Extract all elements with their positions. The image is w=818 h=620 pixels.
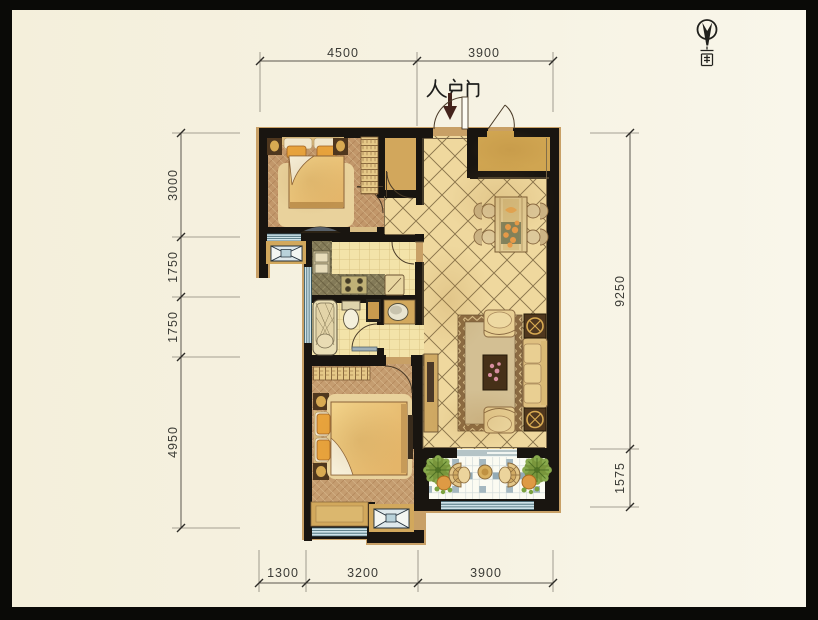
svg-text:3200: 3200 (347, 566, 379, 580)
svg-text:1300: 1300 (267, 566, 299, 580)
svg-text:9250: 9250 (613, 275, 627, 307)
svg-text:3900: 3900 (468, 46, 500, 60)
svg-text:3000: 3000 (166, 169, 180, 201)
svg-text:1575: 1575 (613, 462, 627, 494)
svg-text:1750: 1750 (166, 251, 180, 283)
svg-text:4500: 4500 (327, 46, 359, 60)
svg-text:3900: 3900 (470, 566, 502, 580)
svg-text:4950: 4950 (166, 426, 180, 458)
svg-text:1750: 1750 (166, 311, 180, 343)
